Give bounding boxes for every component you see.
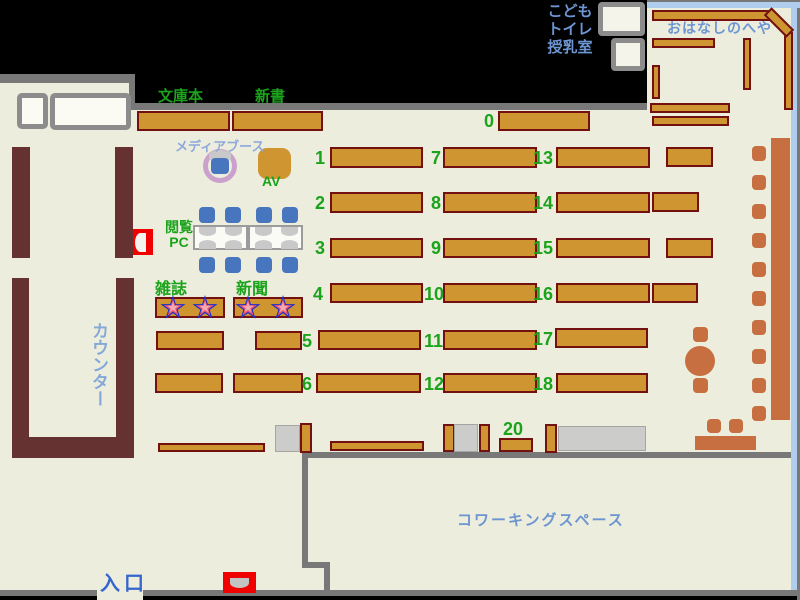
bookshelf [499, 438, 533, 452]
bookshelf [330, 283, 423, 303]
window-seat [752, 320, 766, 335]
bookshelf [556, 373, 648, 393]
shelf-number-17: 17 [533, 329, 553, 349]
staff-desk [17, 93, 48, 129]
label-zasshi: 雑誌 [155, 275, 187, 299]
bookshelf [443, 330, 537, 350]
pc-chair [256, 207, 272, 223]
label-shinsho: 新書 [255, 85, 285, 106]
bookshelf [666, 238, 713, 258]
label-kids-toilet-nursing: こども トイレ 授乳室 [540, 3, 600, 57]
bookshelf [233, 373, 303, 393]
stool [693, 378, 708, 393]
shelf-number-18: 18 [533, 374, 553, 394]
window-seat [752, 146, 766, 161]
staff-desk [50, 93, 131, 130]
bookshelf [652, 65, 660, 99]
bookshelf [652, 283, 698, 303]
bookshelf [330, 147, 423, 168]
counter-block [12, 278, 29, 458]
bookshelf [443, 147, 537, 168]
pillar [454, 424, 478, 452]
shelf-number-13: 13 [533, 148, 553, 168]
shelf-number-12: 12 [424, 374, 444, 394]
keyboard-place [255, 240, 272, 249]
window-seat [752, 204, 766, 219]
toilet-room [611, 38, 645, 71]
keyboard-place [225, 240, 242, 249]
bookshelf [156, 331, 224, 350]
stool [729, 419, 743, 433]
bookshelf [498, 111, 590, 131]
window-seat [752, 406, 766, 421]
bookshelf [443, 192, 537, 213]
pc-chair [282, 257, 298, 273]
bookshelf [479, 424, 490, 452]
window-seat [752, 175, 766, 190]
label-bunkobon: 文庫本 [158, 85, 203, 106]
bookshelf [545, 424, 557, 453]
bookshelf [652, 116, 729, 126]
shelf-number-2: 2 [315, 193, 325, 213]
bookshelf [330, 192, 423, 213]
shelf-number-4: 4 [313, 284, 323, 304]
counter-block [115, 147, 133, 258]
bookshelf [318, 330, 421, 350]
window-seat [752, 291, 766, 306]
bookshelf [137, 111, 230, 131]
label-shinbun: 新聞 [236, 275, 268, 299]
shelf-number-0: 0 [484, 111, 494, 131]
bookshelf [443, 283, 537, 303]
counter-block [12, 437, 133, 458]
shelf-number-16: 16 [533, 284, 553, 304]
pc-chair [225, 207, 241, 223]
shelf-number-6: 6 [302, 374, 312, 394]
counter-block [116, 278, 134, 458]
pc-chair [199, 207, 215, 223]
gate-sensor [135, 233, 146, 252]
round-table [685, 346, 715, 376]
window [647, 2, 800, 8]
window-seat [752, 349, 766, 364]
bookshelf [300, 423, 312, 453]
bookshelf [443, 238, 537, 258]
wall [0, 590, 97, 596]
bookshelf [784, 32, 793, 110]
bookshelf [650, 103, 730, 113]
bookshelf [232, 111, 323, 131]
bookshelf [443, 373, 537, 393]
bookshelf [666, 147, 713, 167]
label-counter: カウンター [86, 322, 111, 407]
wall [302, 452, 308, 568]
shelf-number-3: 3 [315, 238, 325, 258]
shelf-number-15: 15 [533, 238, 553, 258]
wall [135, 103, 647, 110]
bookshelf [330, 238, 423, 258]
keyboard-place [255, 227, 272, 236]
pc-chair [282, 207, 298, 223]
bookshelf [330, 441, 424, 451]
bookshelf [556, 147, 650, 168]
shelf-number-9: 9 [431, 238, 441, 258]
pillar [275, 425, 300, 452]
bookshelf [316, 373, 421, 393]
shelf-number-5: 5 [302, 331, 312, 351]
stool [707, 419, 721, 433]
bookshelf [556, 283, 650, 303]
keyboard-place [199, 227, 216, 236]
shelf-number-14: 14 [533, 193, 553, 213]
shelf-number-20: 20 [503, 419, 523, 439]
bookshelf [743, 38, 751, 90]
bookshelf [556, 192, 650, 213]
shelf-number-8: 8 [431, 193, 441, 213]
shelf-number-11: 11 [424, 331, 443, 351]
toilet-room [598, 2, 645, 36]
bookshelf [652, 38, 715, 48]
bookshelf [155, 373, 223, 393]
window-seat [752, 378, 766, 393]
library-floor-map: 012345678910111213141516171820文庫本新書メディアブ… [0, 0, 800, 600]
label-reading-pc: 閲覧 PC [160, 220, 198, 250]
bench [695, 436, 756, 450]
keyboard-place [225, 227, 242, 236]
pc-chair [225, 257, 241, 273]
label-coworking: コワーキングスペース [457, 509, 625, 530]
pc-chair [199, 257, 215, 273]
bookshelf [555, 328, 648, 348]
bench-strip [771, 138, 790, 420]
label-media-booth: メディアブース [175, 136, 264, 155]
shelf-number-10: 10 [424, 284, 444, 304]
shelf-number-7: 7 [431, 148, 441, 168]
label-av: AV [262, 173, 280, 189]
media-chair [211, 158, 229, 174]
keyboard-place [281, 227, 298, 236]
window-seat [752, 262, 766, 277]
label-ohanashi-room: おはなしのへや [667, 18, 772, 38]
keyboard-place [199, 240, 216, 249]
window-seat [752, 233, 766, 248]
bookshelf [255, 331, 302, 350]
keyboard-place [281, 240, 298, 249]
bookshelf [652, 192, 699, 212]
shelf-number-1: 1 [315, 148, 325, 168]
wall [0, 74, 135, 83]
gate-sensor [230, 578, 249, 588]
pc-chair [256, 257, 272, 273]
bookshelf [158, 443, 265, 452]
label-entrance: 入口 [100, 567, 148, 596]
bookshelf [556, 238, 650, 258]
counter-block [12, 147, 30, 258]
stool [693, 327, 708, 342]
large-table [558, 426, 646, 451]
